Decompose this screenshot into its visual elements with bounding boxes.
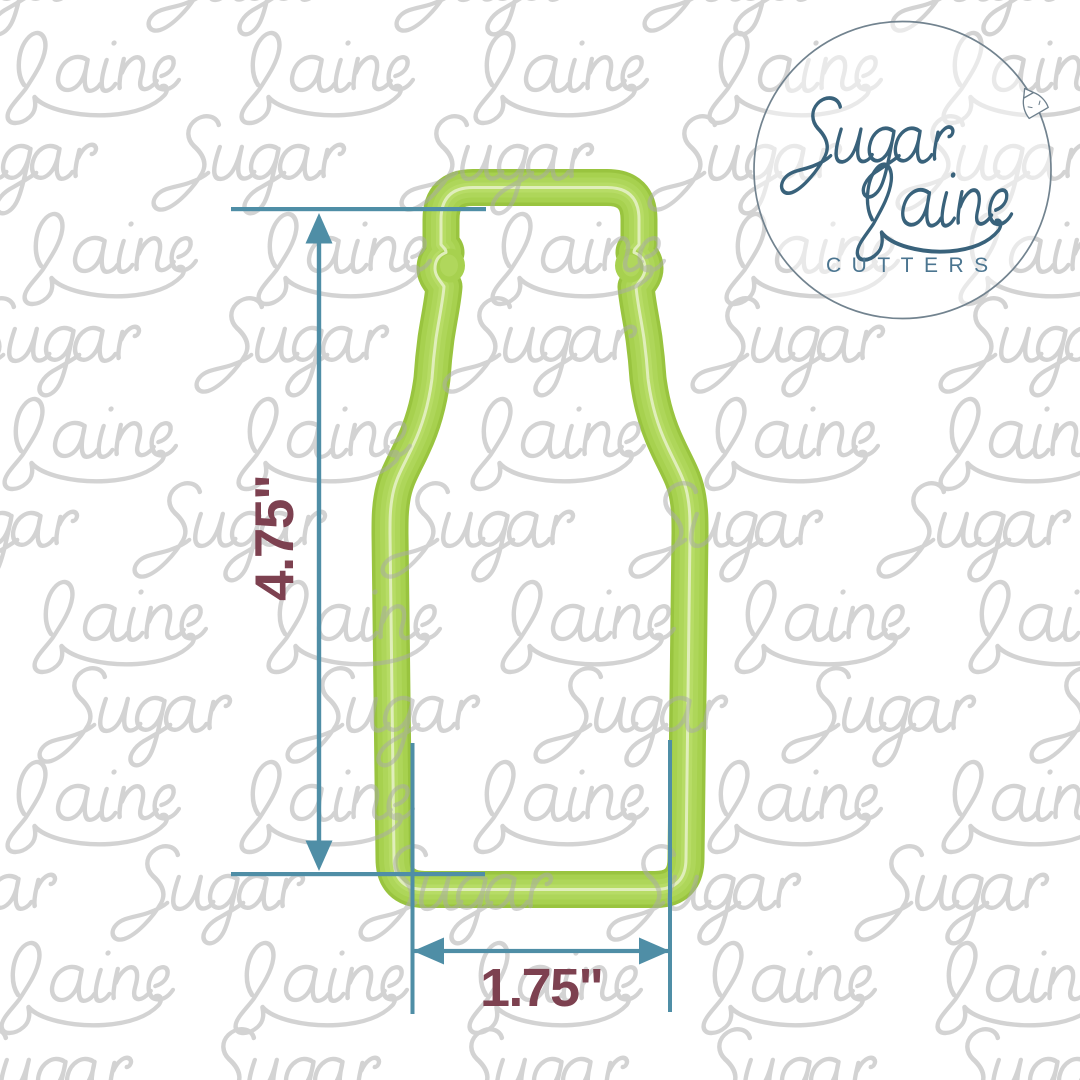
- svg-text:4.75": 4.75": [243, 474, 305, 601]
- svg-text:1.75": 1.75": [480, 958, 604, 1018]
- svg-text:CUTTERS: CUTTERS: [826, 254, 999, 277]
